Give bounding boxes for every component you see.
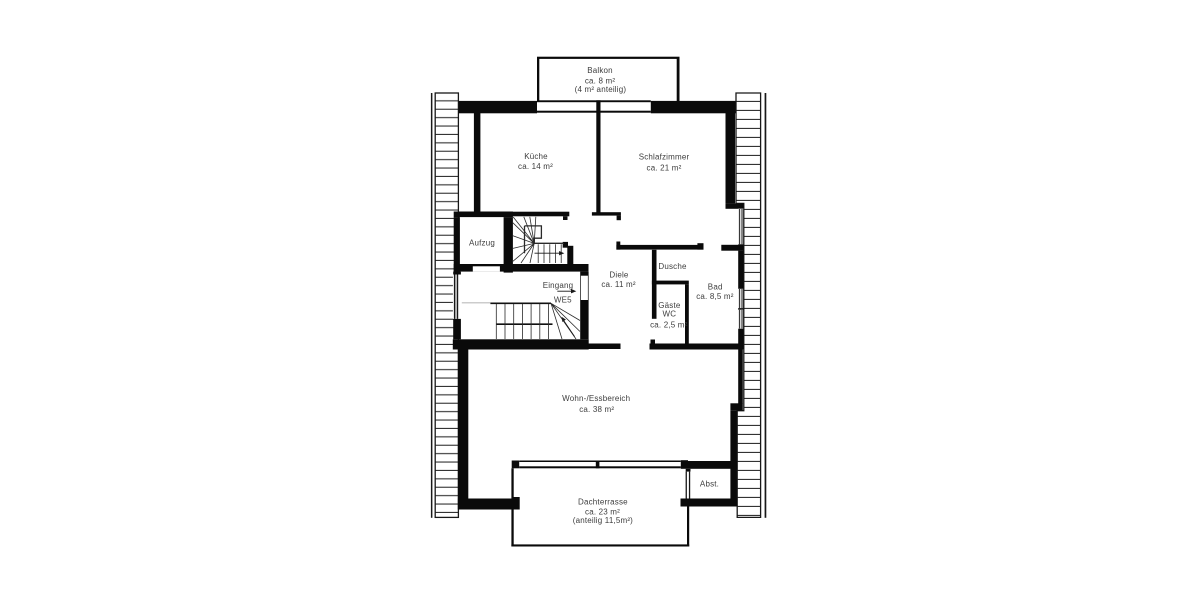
svg-text:(anteilig 11,5m²): (anteilig 11,5m²) xyxy=(573,516,633,525)
svg-text:Gäste: Gäste xyxy=(658,301,681,310)
svg-text:Diele: Diele xyxy=(609,270,629,279)
svg-text:Abst.: Abst. xyxy=(700,480,719,489)
svg-text:Aufzug: Aufzug xyxy=(469,238,495,247)
svg-text:ca. 23 m²: ca. 23 m² xyxy=(585,507,620,516)
svg-text:WE5: WE5 xyxy=(554,295,572,304)
svg-text:(4 m² anteilig): (4 m² anteilig) xyxy=(575,85,627,94)
svg-text:Bad: Bad xyxy=(708,283,723,292)
svg-text:ca. 21 m²: ca. 21 m² xyxy=(647,163,682,172)
svg-text:Wohn-/Essbereich: Wohn-/Essbereich xyxy=(562,394,630,403)
svg-text:Küche: Küche xyxy=(524,152,548,161)
svg-text:WC: WC xyxy=(663,310,677,319)
svg-text:ca. 14 m²: ca. 14 m² xyxy=(518,162,553,171)
svg-text:Schlafzimmer: Schlafzimmer xyxy=(639,153,690,162)
svg-text:Eingang: Eingang xyxy=(543,281,574,290)
svg-text:ca. 38 m²: ca. 38 m² xyxy=(579,405,614,414)
svg-text:Dachterrasse: Dachterrasse xyxy=(578,498,628,507)
svg-text:ca. 2,5 m²: ca. 2,5 m² xyxy=(650,320,688,329)
svg-text:Dusche: Dusche xyxy=(658,262,687,271)
svg-text:ca. 8 m²: ca. 8 m² xyxy=(585,76,615,85)
svg-text:ca. 8,5 m²: ca. 8,5 m² xyxy=(696,292,734,301)
svg-text:Balkon: Balkon xyxy=(587,66,613,75)
svg-text:ca. 11 m²: ca. 11 m² xyxy=(601,280,636,289)
